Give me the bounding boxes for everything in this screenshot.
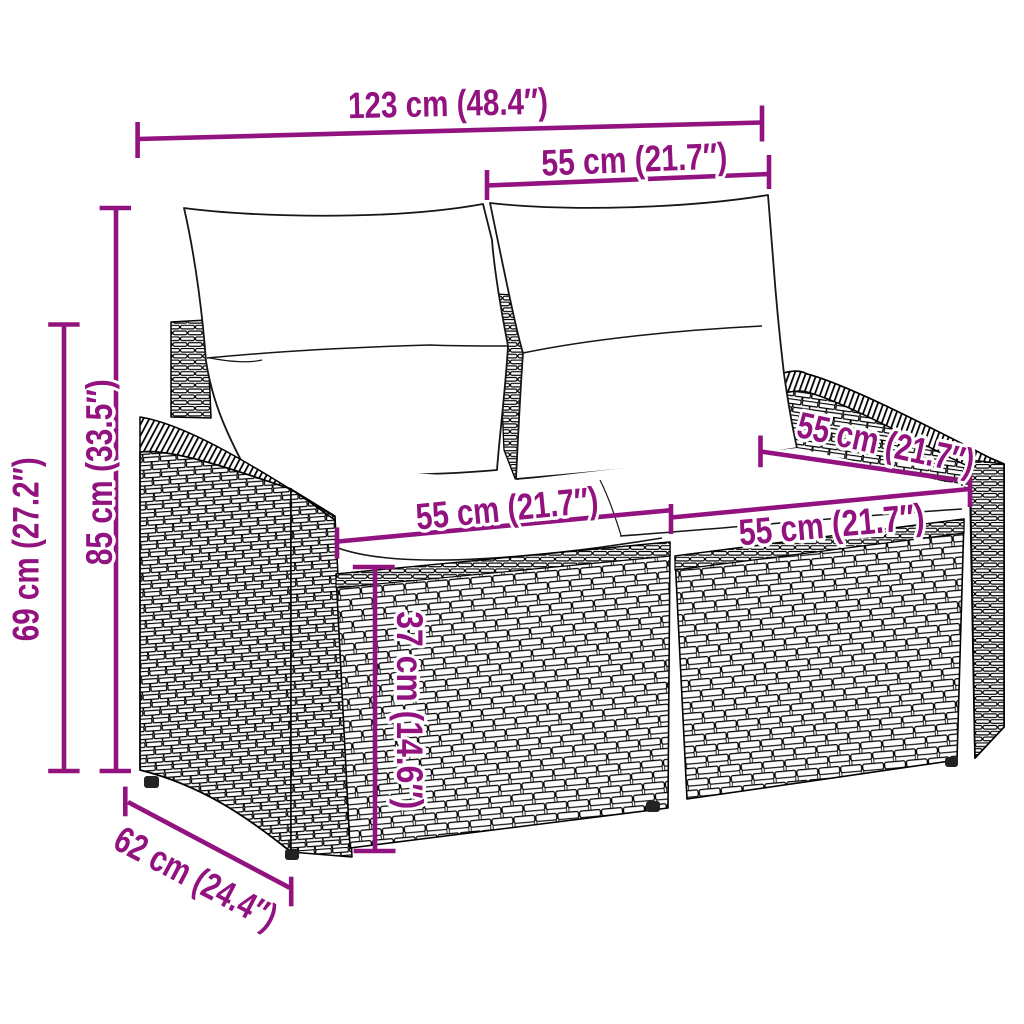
svg-text:69 cm (27.2″): 69 cm (27.2″) — [6, 457, 47, 641]
svg-text:37 cm (14.6″): 37 cm (14.6″) — [389, 611, 430, 809]
svg-text:55 cm (21.7″): 55 cm (21.7″) — [541, 135, 728, 183]
svg-text:123 cm (48.4″): 123 cm (48.4″) — [348, 81, 549, 127]
svg-text:85 cm (33.5″): 85 cm (33.5″) — [79, 379, 120, 565]
